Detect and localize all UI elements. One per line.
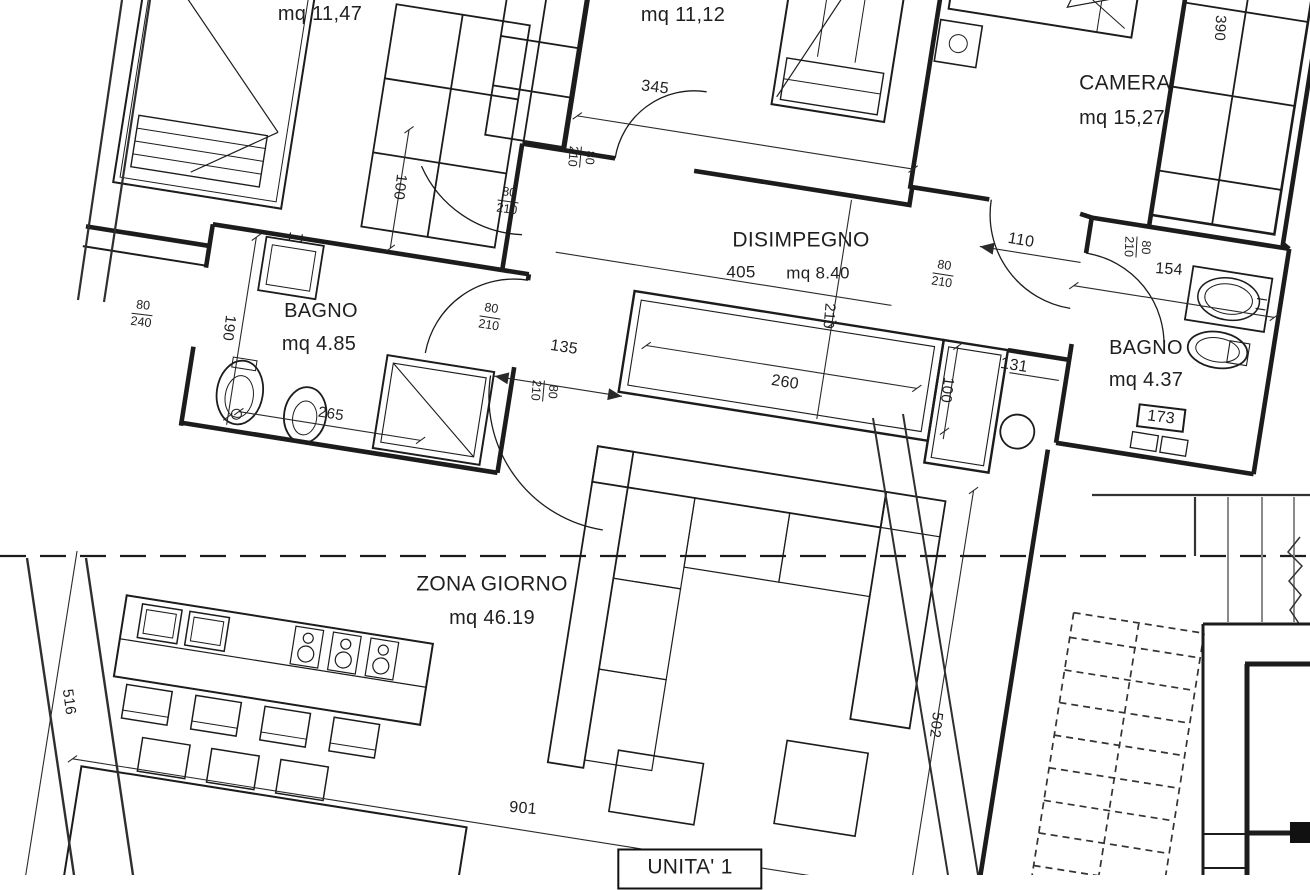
dim-516: 516 [60,688,78,716]
kitchen-stove [290,626,399,680]
dim-345: 345 [640,78,669,97]
door-size-80-210-f: 80210 [1121,236,1152,258]
label-bagno2-area: mq 4.37 [1109,370,1183,390]
label-room1-area: mq 11,47 [278,4,362,24]
dim-502: 502 [927,711,945,739]
door-size-80-210-b: 80210 [565,145,597,168]
dim-390: 390 [1212,15,1228,42]
door-size-80-240: 80240 [130,298,154,330]
terrace-walls [1203,624,1310,875]
door-size-80-210-a: 80210 [496,185,521,218]
unit-title-box: UNITA' 1 [617,849,762,890]
stair-hall-gray-lines [1228,497,1294,622]
label-disimpegno-name: DISIMPEGNO [732,230,869,251]
bed-room1 [113,0,318,209]
dim-100-right: 100 [938,376,956,404]
kitchen-stools [121,684,379,758]
label-bagno1-area: mq 4.85 [282,334,356,354]
dim-265: 265 [317,405,345,424]
toilet-bagno2 [1185,327,1251,372]
bed-room2 [772,0,924,122]
label-camera-area: mq 15,27 [1079,108,1165,128]
dim-210: 210 [820,302,837,329]
dim-100-top: 100 [391,173,409,201]
label-camera-name: CAMERA [1079,73,1171,94]
kitchen-counter-bottom [55,729,473,875]
staircase [1031,613,1204,875]
washer-bagno2 [1130,432,1188,457]
sink-bagno2 [1185,266,1272,332]
walls-main [0,0,1310,875]
bed-camera [949,0,1151,38]
dim-154: 154 [1155,261,1184,279]
dim-901: 901 [509,800,538,818]
label-bagno2-name: BAGNO [1109,338,1183,358]
cabinet-disimpegno [924,340,1008,473]
kitchen-island [114,595,433,724]
door-size-80-210-c: 80210 [930,258,955,291]
label-zona-giorno-name: ZONA GIORNO [416,574,567,595]
wall-double-line [83,246,206,266]
shower-bagno1 [373,355,494,465]
plan-rotated-layer [0,0,1310,875]
dim-190: 190 [220,314,238,342]
door-size-80-210-e: 80210 [528,379,560,402]
ottoman-1 [609,750,704,825]
door-size-80-210-d: 80210 [477,301,502,334]
floor-plan-canvas [0,0,1310,875]
overlay-layer [0,0,1310,875]
wardrobe-camera-390 [1151,0,1310,234]
label-disimpegno-area: mq 8.40 [786,265,850,282]
wardrobe-room2 [485,0,586,147]
label-bagno1-name: BAGNO [284,301,358,321]
toilet-bagno1 [212,355,268,427]
ottoman-2 [774,740,868,836]
stair-hall-walls [1092,495,1310,556]
stool-circle [998,412,1037,451]
closet-disimpegno [619,291,944,441]
floor-plan: mq 11,47 mq 11,12 345 CAMERA mq 15,27 39… [0,0,1310,875]
dim-405: 405 [726,264,755,281]
label-zona-giorno-area: mq 46.19 [449,608,535,628]
door-arc-bagno1 [425,266,528,367]
nightstand-camera [934,20,982,68]
label-room2-area: mq 11,12 [641,5,725,25]
